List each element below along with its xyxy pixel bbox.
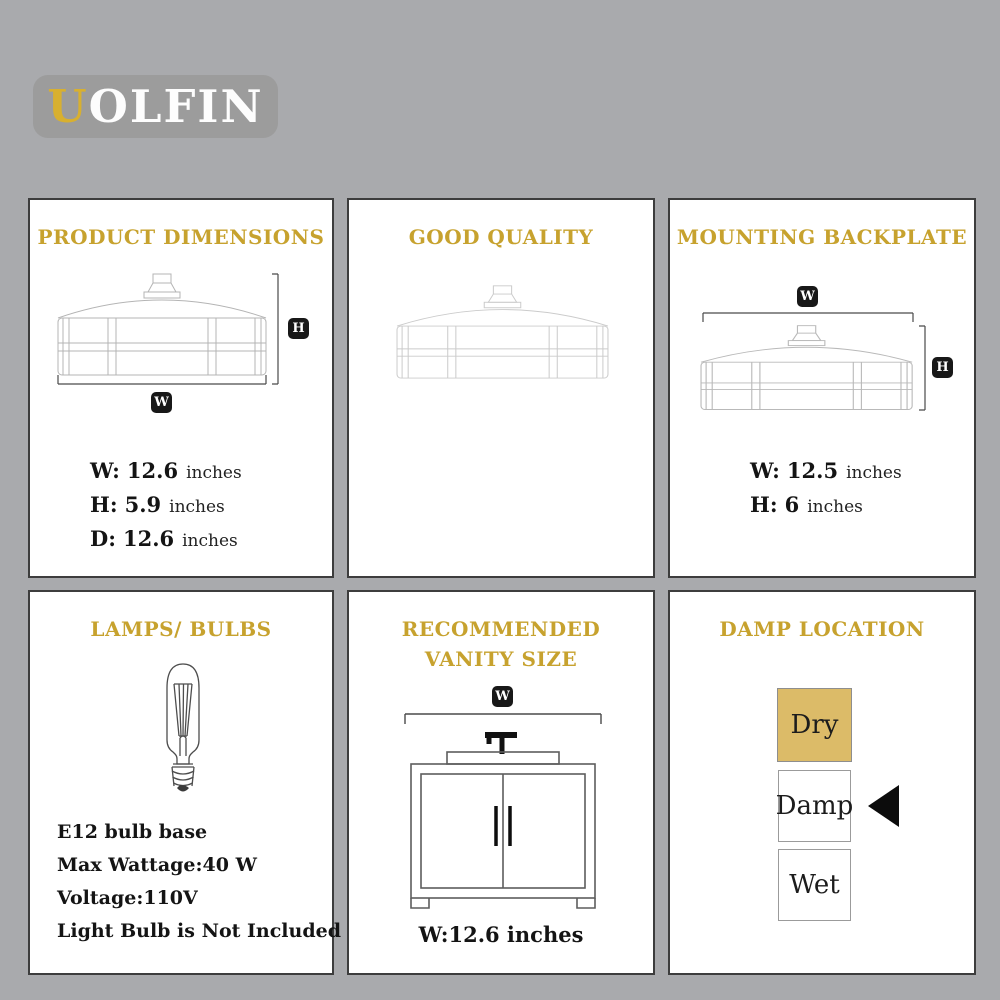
infographic-page: UOLFIN PRODUCT DIMENSIONS H W bbox=[0, 0, 1000, 1000]
card-title: GOOD QUALITY bbox=[349, 222, 653, 252]
level-wet: Wet bbox=[778, 849, 851, 921]
measure-lines bbox=[405, 714, 601, 724]
width-badge: W bbox=[151, 392, 172, 413]
vanity-width-text: W:12.6 inches bbox=[349, 922, 653, 947]
light-bulb-drawing bbox=[153, 652, 213, 800]
width-badge: W bbox=[492, 686, 513, 707]
height-badge: H bbox=[288, 318, 309, 339]
card-title-line2: VANITY SIZE bbox=[349, 644, 653, 674]
card-mounting-backplate: MOUNTING BACKPLATE W H W: bbox=[668, 198, 976, 578]
brand-logo: UOLFIN bbox=[33, 75, 278, 138]
card-damp-location: DAMP LOCATION Dry Damp Wet bbox=[668, 590, 976, 975]
card-title: MOUNTING BACKPLATE bbox=[670, 222, 974, 252]
dimension-height: H: 6 inches bbox=[750, 492, 902, 526]
dimension-depth: D: 12.6 inches bbox=[90, 526, 242, 560]
dimension-list: W: 12.6 inches H: 5.9 inches D: 12.6 inc… bbox=[90, 458, 242, 560]
spec-max-wattage: Max Wattage:40 W bbox=[57, 849, 341, 882]
spec-bulb-included: Light Bulb is Not Included bbox=[57, 915, 341, 948]
bulb-spec-list: E12 bulb base Max Wattage:40 W Voltage:1… bbox=[57, 816, 341, 948]
dimension-height: H: 5.9 inches bbox=[90, 492, 242, 526]
card-title: LAMPS/ BULBS bbox=[30, 614, 332, 644]
height-badge: H bbox=[932, 357, 953, 378]
measure-lines bbox=[58, 274, 278, 384]
logo-letter-accent: U bbox=[47, 84, 88, 129]
arrow-left-icon bbox=[868, 785, 899, 827]
level-damp: Damp bbox=[778, 770, 851, 842]
dimension-width: W: 12.6 inches bbox=[90, 458, 242, 492]
dimension-list: W: 12.5 inches H: 6 inches bbox=[750, 458, 902, 526]
level-dry: Dry bbox=[777, 688, 852, 762]
width-badge: W bbox=[797, 286, 818, 307]
card-vanity-size: RECOMMENDED VANITY SIZE W W:12.6 inches bbox=[347, 590, 655, 975]
vanity-cabinet-drawing bbox=[401, 710, 605, 914]
measure-lines bbox=[703, 313, 925, 410]
ceiling-light-drawing bbox=[56, 260, 288, 388]
card-lamps-bulbs: LAMPS/ BULBS E12 bulb base Max Wattage:4… bbox=[28, 590, 334, 975]
card-title: RECOMMENDED VANITY SIZE bbox=[349, 614, 653, 674]
card-title: PRODUCT DIMENSIONS bbox=[30, 222, 332, 252]
card-good-quality: GOOD QUALITY bbox=[347, 198, 655, 578]
spec-bulb-base: E12 bulb base bbox=[57, 816, 341, 849]
logo-letters: OLFIN bbox=[89, 84, 264, 129]
backplate-drawing bbox=[695, 310, 935, 412]
card-title: DAMP LOCATION bbox=[670, 614, 974, 644]
card-title-line1: RECOMMENDED bbox=[349, 614, 653, 644]
dimension-width: W: 12.5 inches bbox=[750, 458, 902, 492]
card-product-dimensions: PRODUCT DIMENSIONS H W W: bbox=[28, 198, 334, 578]
spec-voltage: Voltage:110V bbox=[57, 882, 341, 915]
ceiling-light-drawing bbox=[395, 284, 610, 379]
